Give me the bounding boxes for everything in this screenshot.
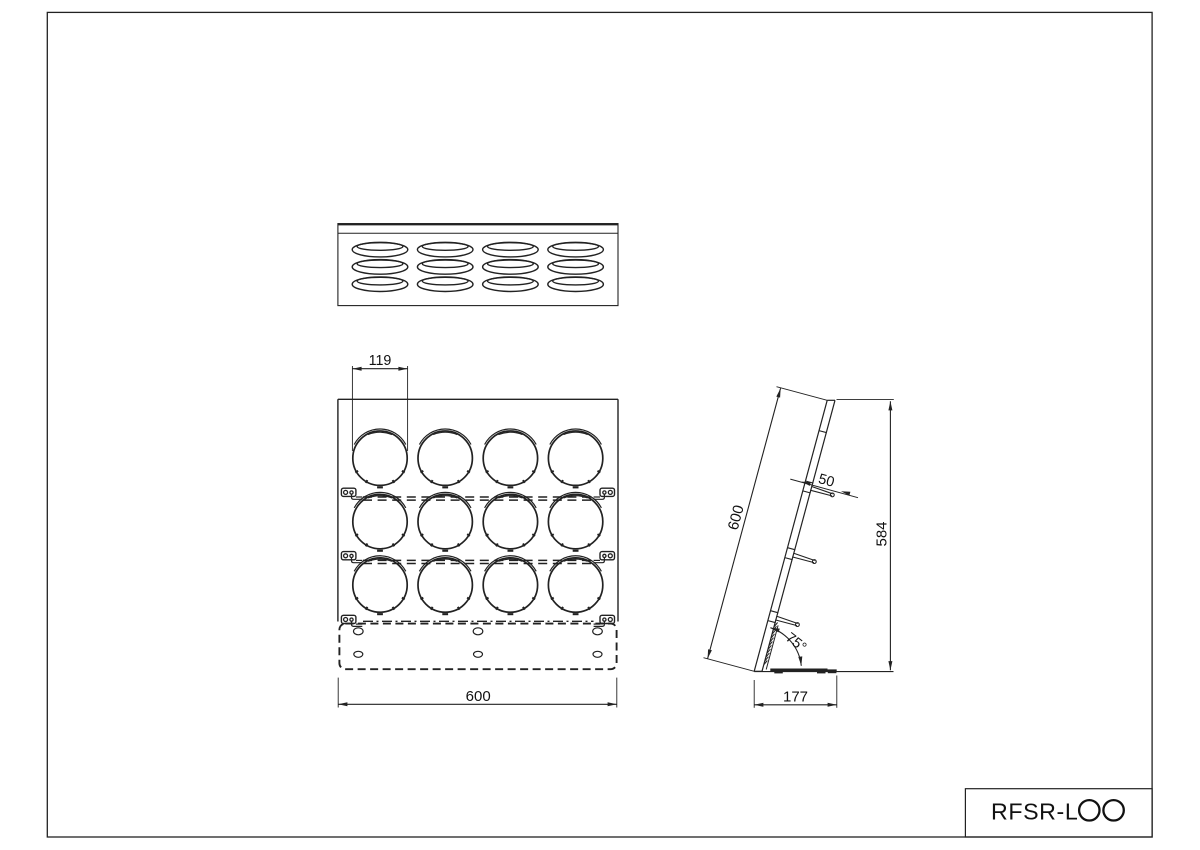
svg-text:177: 177 <box>783 689 808 706</box>
svg-text:600: 600 <box>466 688 491 705</box>
svg-text:119: 119 <box>369 353 392 369</box>
svg-text:RFSR-L: RFSR-L <box>991 799 1078 825</box>
svg-text:584: 584 <box>873 521 890 546</box>
